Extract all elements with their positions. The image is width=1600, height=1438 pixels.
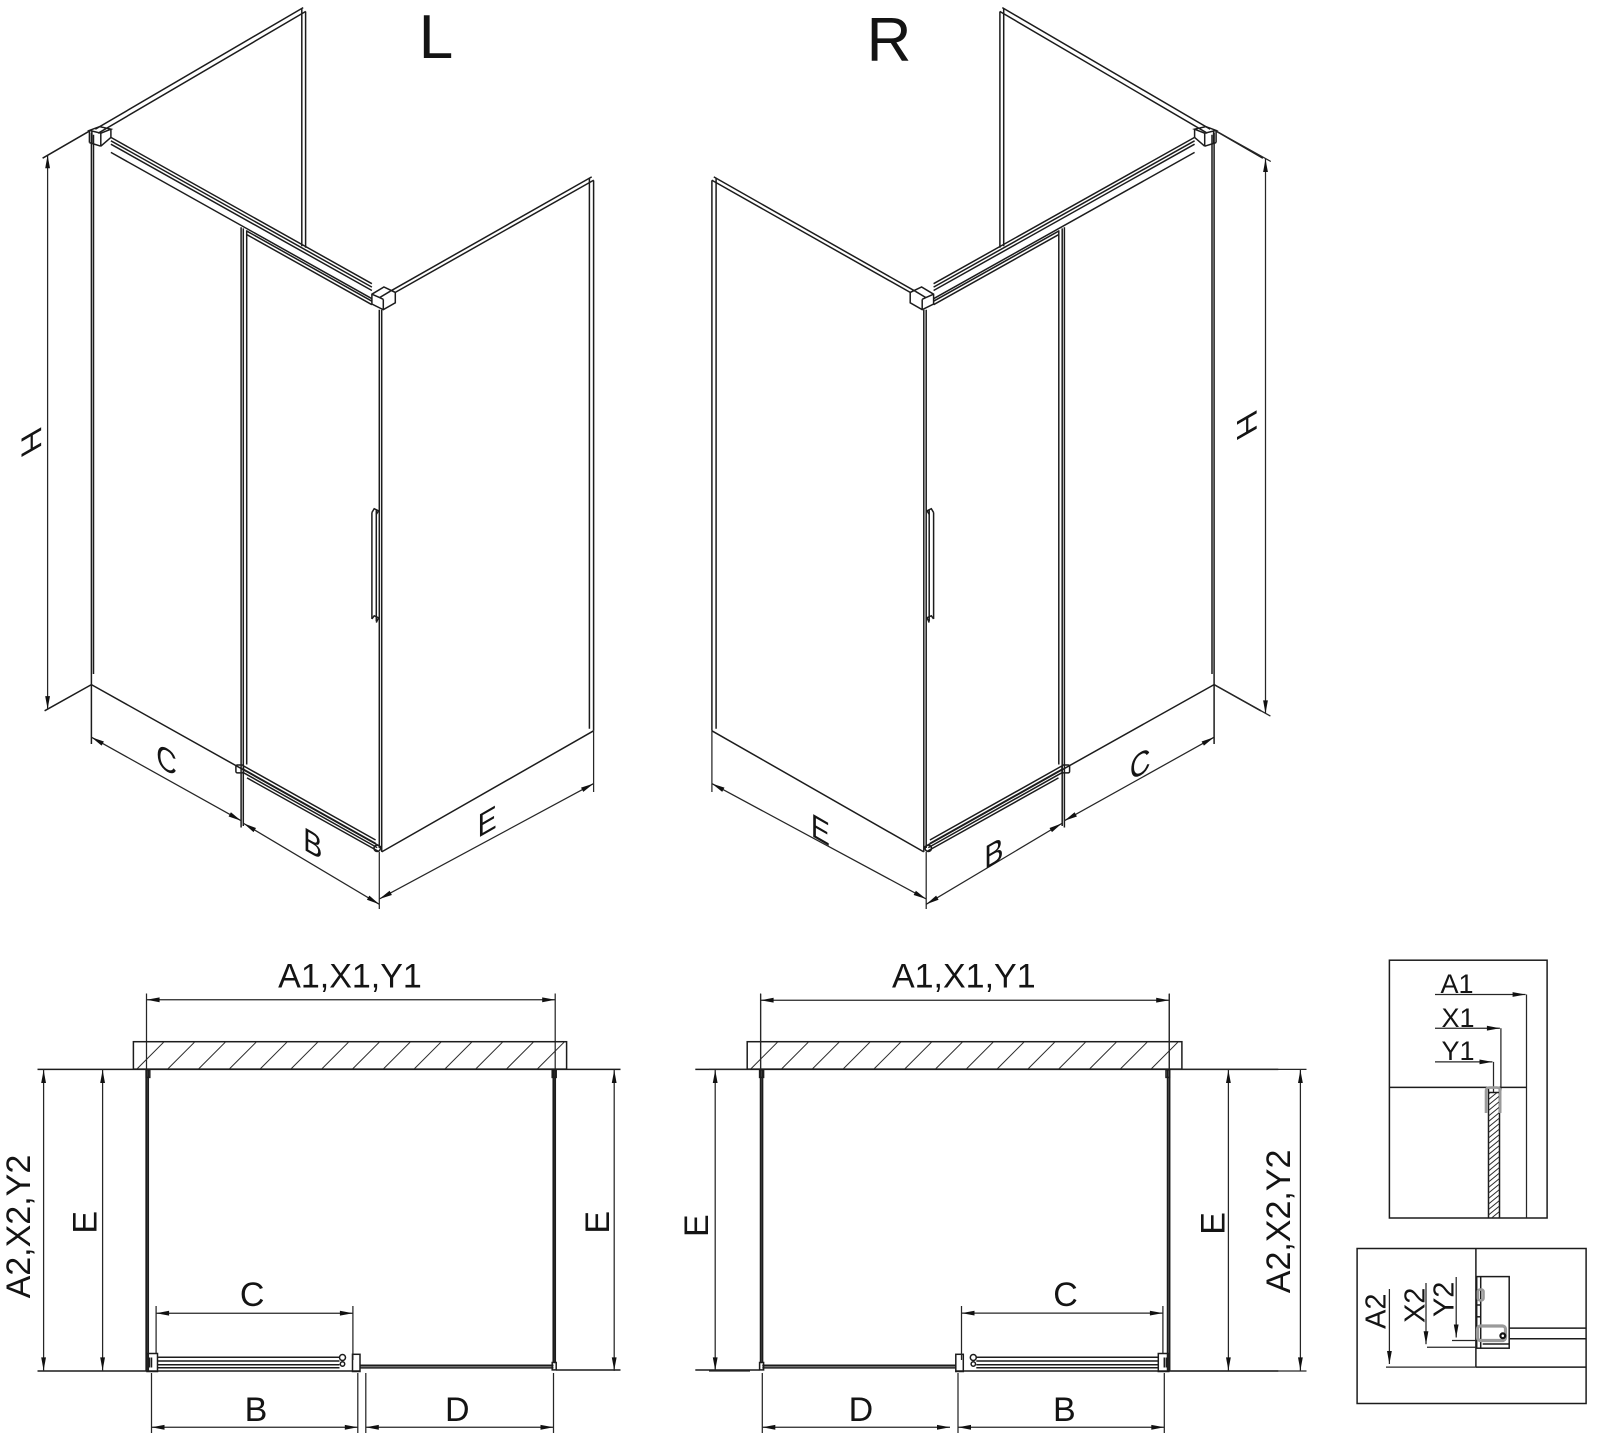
svg-text:A1,X1,Y1: A1,X1,Y1 — [892, 958, 1036, 996]
svg-text:A2,X2,Y2: A2,X2,Y2 — [1260, 1150, 1298, 1294]
svg-text:A2: A2 — [1360, 1293, 1392, 1328]
svg-text:D: D — [445, 1391, 470, 1429]
svg-text:E: E — [678, 1214, 716, 1237]
svg-text:B: B — [1053, 1391, 1076, 1429]
svg-text:L: L — [419, 3, 453, 72]
svg-text:E: E — [66, 1211, 104, 1234]
svg-text:C: C — [1053, 1276, 1078, 1314]
svg-text:R: R — [867, 6, 912, 75]
svg-text:E: E — [1194, 1212, 1232, 1235]
svg-text:C: C — [156, 735, 177, 784]
svg-text:D: D — [849, 1391, 874, 1429]
svg-text:E: E — [478, 797, 497, 845]
svg-text:C: C — [1130, 739, 1151, 788]
svg-text:Y2: Y2 — [1428, 1282, 1460, 1317]
svg-text:C: C — [240, 1276, 265, 1314]
svg-text:H: H — [15, 421, 47, 463]
svg-text:H: H — [1231, 404, 1263, 446]
svg-text:E: E — [579, 1211, 617, 1234]
svg-text:A1,X1,Y1: A1,X1,Y1 — [278, 958, 422, 996]
svg-text:B: B — [245, 1391, 268, 1429]
svg-text:B: B — [984, 829, 1003, 877]
svg-text:A2,X2,Y2: A2,X2,Y2 — [0, 1155, 38, 1299]
svg-text:E: E — [811, 805, 830, 853]
